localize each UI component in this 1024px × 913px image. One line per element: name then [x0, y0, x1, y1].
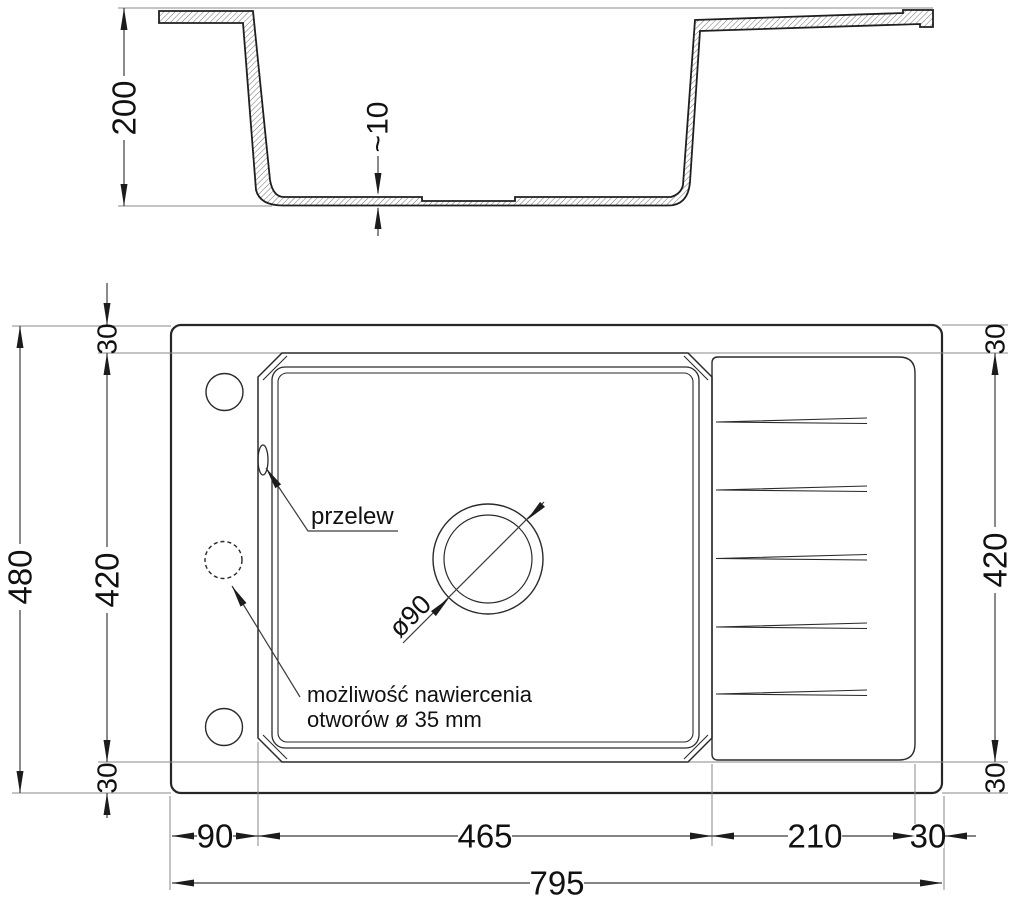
arrowhead — [17, 771, 24, 793]
arrowhead — [104, 740, 111, 762]
cross-section-profile — [159, 10, 933, 206]
dim-label-bowl-width: 465 — [457, 818, 512, 855]
arrowhead — [236, 833, 258, 840]
dim-label-bottom-thickness: ~10 — [362, 102, 395, 153]
dim-label-margin-top-right: 30 — [980, 323, 1011, 354]
drill-note-line1: możliwość nawiercenia — [307, 682, 533, 707]
arrowhead — [375, 173, 382, 195]
arrowhead — [945, 833, 967, 840]
dim-label-margin-bottom-left: 30 — [92, 762, 123, 793]
arrowhead — [712, 833, 734, 840]
drawing-canvas: 200 ~10 — [0, 0, 1024, 913]
dim-label-margin-top-left: 30 — [92, 323, 123, 354]
dim-label-drainboard-width: 210 — [787, 818, 842, 855]
arrowhead — [17, 326, 24, 348]
cross-section-view: 200 ~10 — [106, 8, 934, 236]
dim-label-left-offset: 90 — [197, 818, 234, 855]
arrowhead — [920, 880, 942, 887]
dim-label-inner-height-right: 420 — [977, 532, 1014, 587]
dim-label-section-height: 200 — [106, 80, 143, 135]
arrowhead — [992, 740, 999, 762]
dim-label-inner-height-left: 420 — [89, 552, 126, 607]
arrowhead — [104, 353, 111, 375]
arrowhead — [172, 833, 194, 840]
arrowhead — [375, 207, 382, 229]
dim-label-overall-height: 480 — [2, 549, 39, 604]
sink-outer-body — [171, 325, 942, 793]
arrowhead — [104, 793, 111, 815]
plan-view: ø90 przelew możliwość nawiercenia otworó… — [12, 325, 1008, 793]
arrowhead — [172, 880, 194, 887]
overflow-label: przelew — [311, 503, 394, 530]
sink-technical-drawing: 200 ~10 — [0, 0, 1024, 913]
drill-note-line2: otworów ø 35 mm — [307, 707, 482, 732]
dim-label-right-offset: 30 — [910, 818, 947, 855]
dim-label-margin-bottom-right: 30 — [980, 762, 1011, 793]
arrowhead — [104, 303, 111, 325]
arrowhead — [992, 353, 999, 375]
arrowhead — [690, 833, 712, 840]
arrowhead — [258, 833, 280, 840]
arrowhead — [121, 184, 128, 206]
dim-label-overall-width: 795 — [529, 865, 584, 902]
arrowhead — [121, 8, 128, 30]
